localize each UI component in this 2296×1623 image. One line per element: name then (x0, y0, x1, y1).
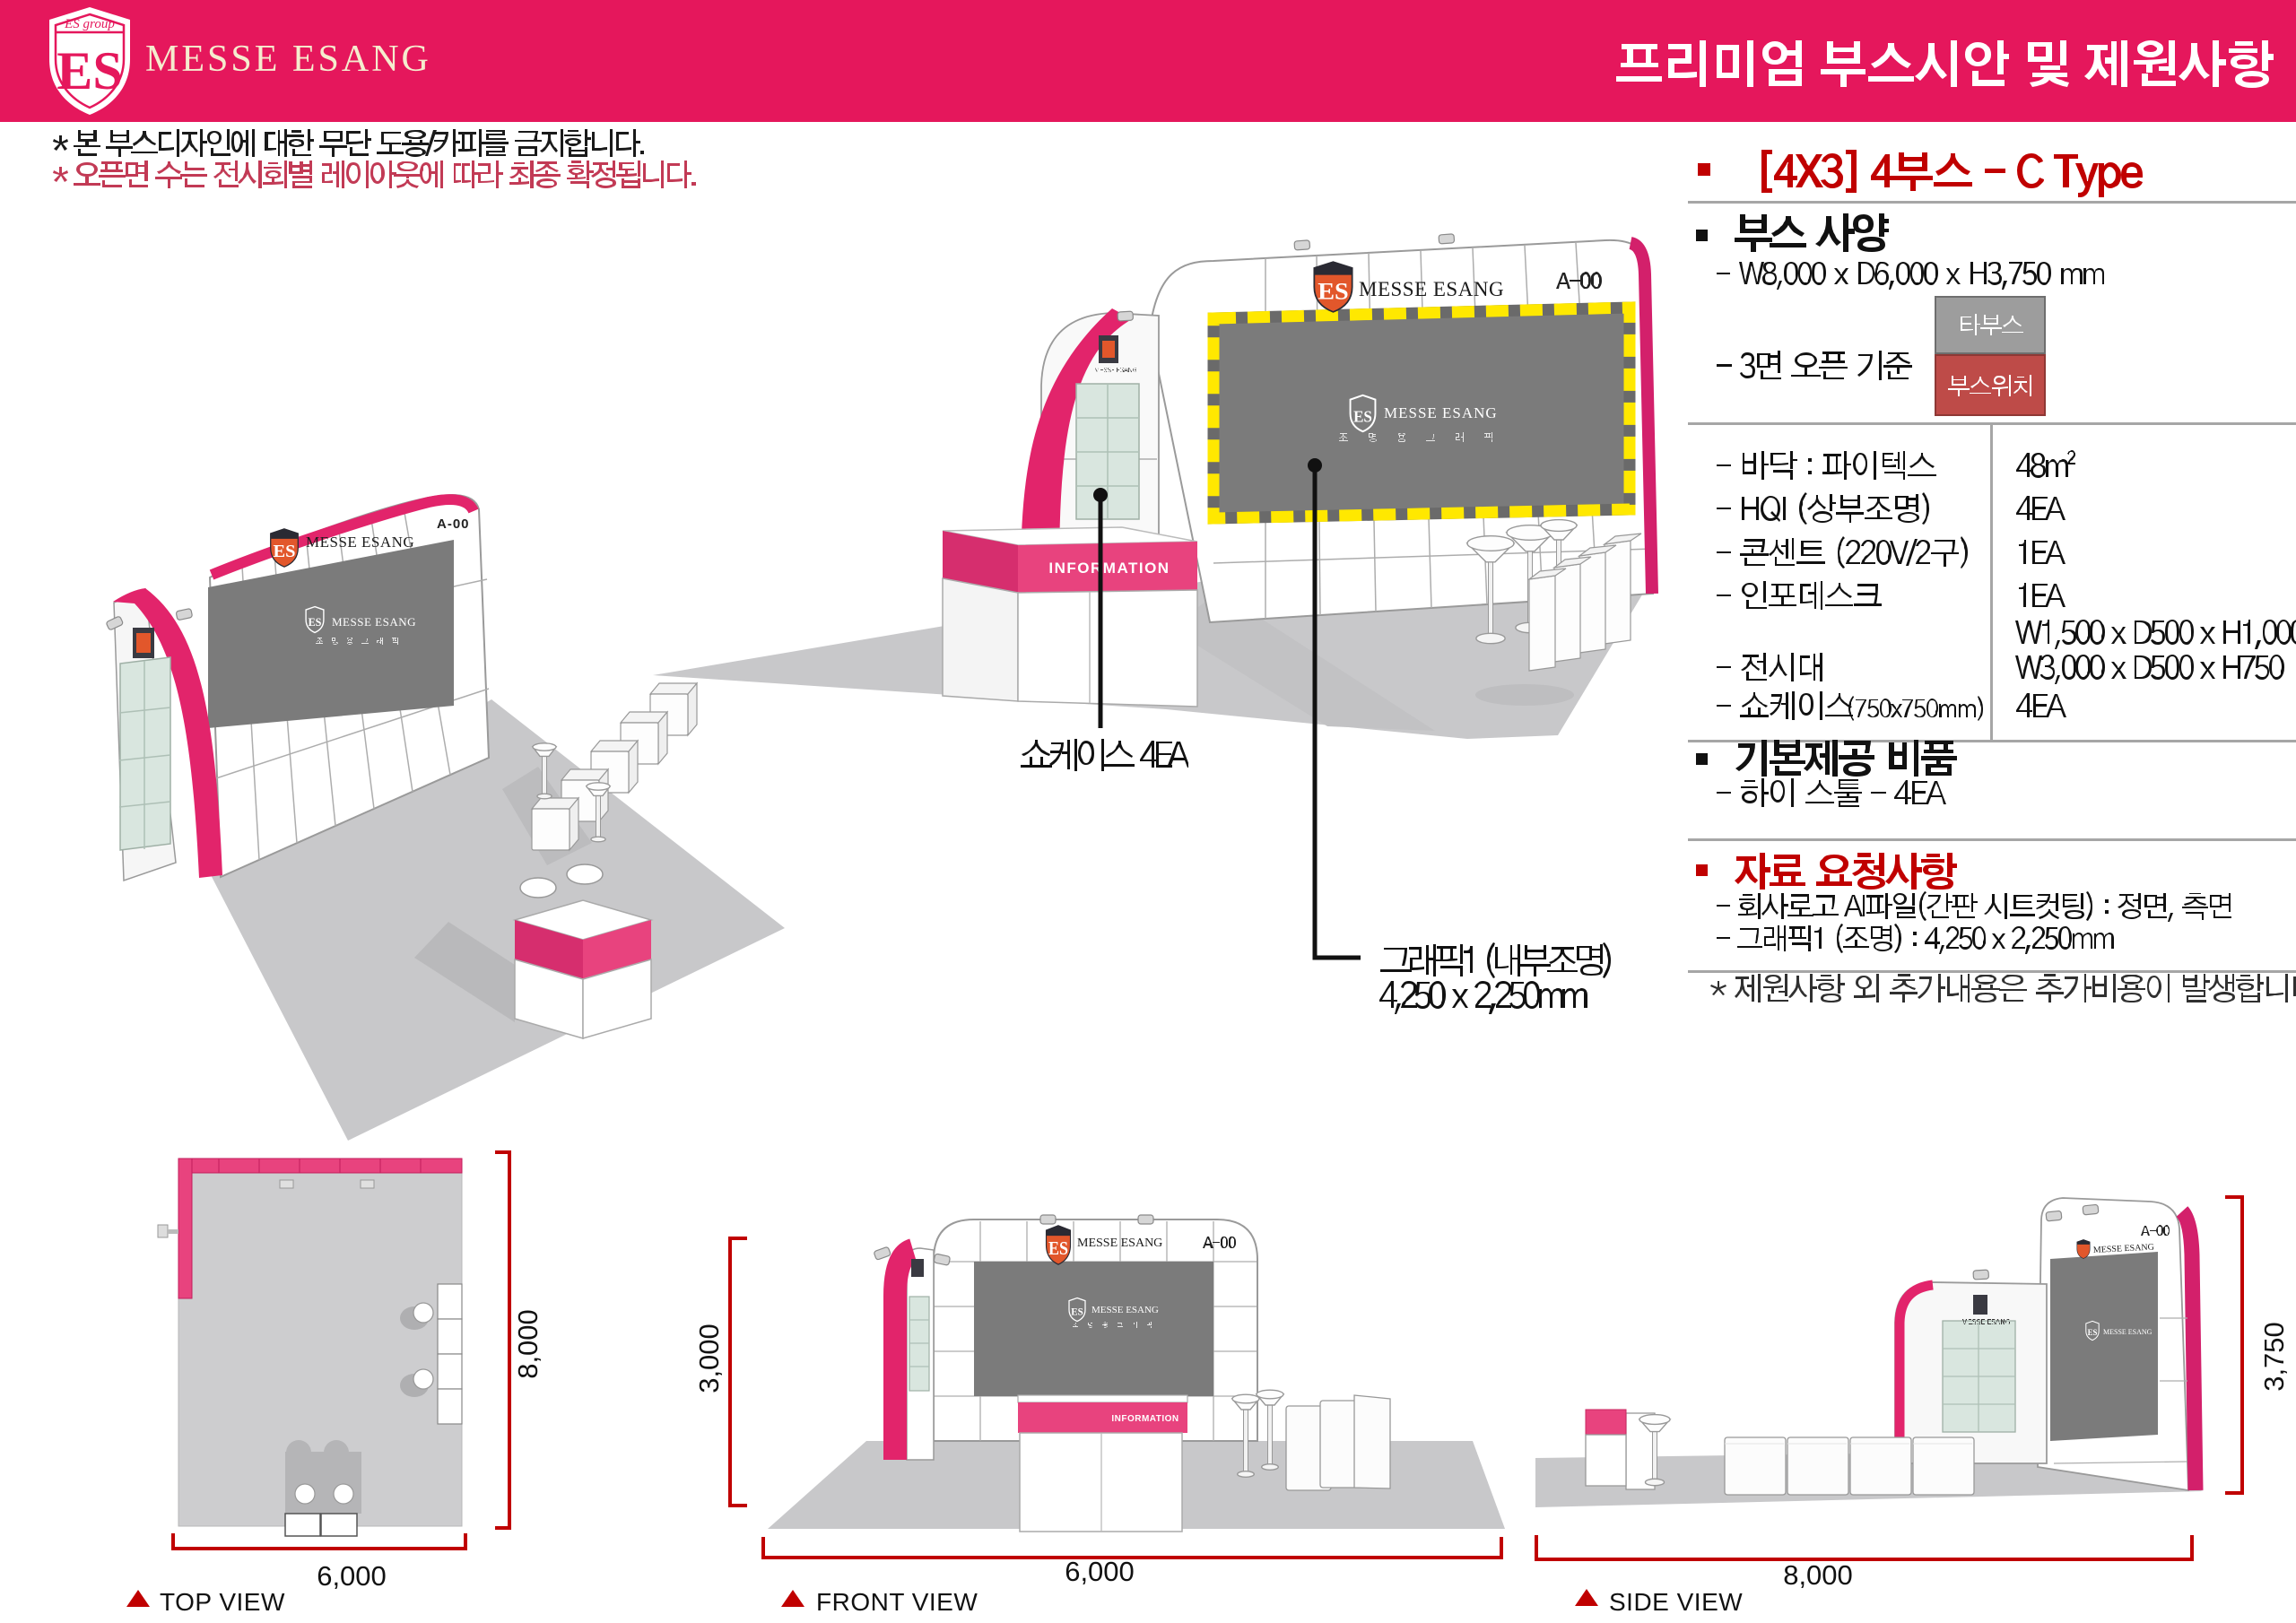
svg-text:MESSE ESANG: MESSE ESANG (1384, 404, 1498, 421)
svg-text:INFORMATION: INFORMATION (1111, 1414, 1178, 1424)
svg-text:INFORMATION: INFORMATION (1048, 560, 1170, 577)
svg-text:ES: ES (1071, 1307, 1083, 1318)
svg-text:ES group: ES group (64, 17, 115, 31)
svg-text:ES: ES (309, 616, 322, 629)
svg-text:A-00: A-00 (437, 516, 470, 532)
svg-text:MESSE ESANG: MESSE ESANG (306, 534, 414, 551)
svg-text:ES: ES (2088, 1328, 2098, 1337)
svg-text:ES: ES (274, 542, 296, 561)
svg-text:MESSE ESANG: MESSE ESANG (1077, 1237, 1162, 1250)
svg-text:MESSE ESANG: MESSE ESANG (1359, 278, 1504, 300)
svg-text:ES: ES (1353, 407, 1372, 425)
svg-text:MESSE ESANG: MESSE ESANG (332, 615, 416, 629)
svg-text:MESSE ESANG: MESSE ESANG (2103, 1328, 2152, 1336)
svg-text:ES: ES (1048, 1239, 1068, 1259)
svg-text:MESSE ESANG: MESSE ESANG (1091, 1305, 1159, 1315)
svg-text:ES: ES (1318, 278, 1348, 304)
svg-text:ES: ES (57, 41, 122, 100)
